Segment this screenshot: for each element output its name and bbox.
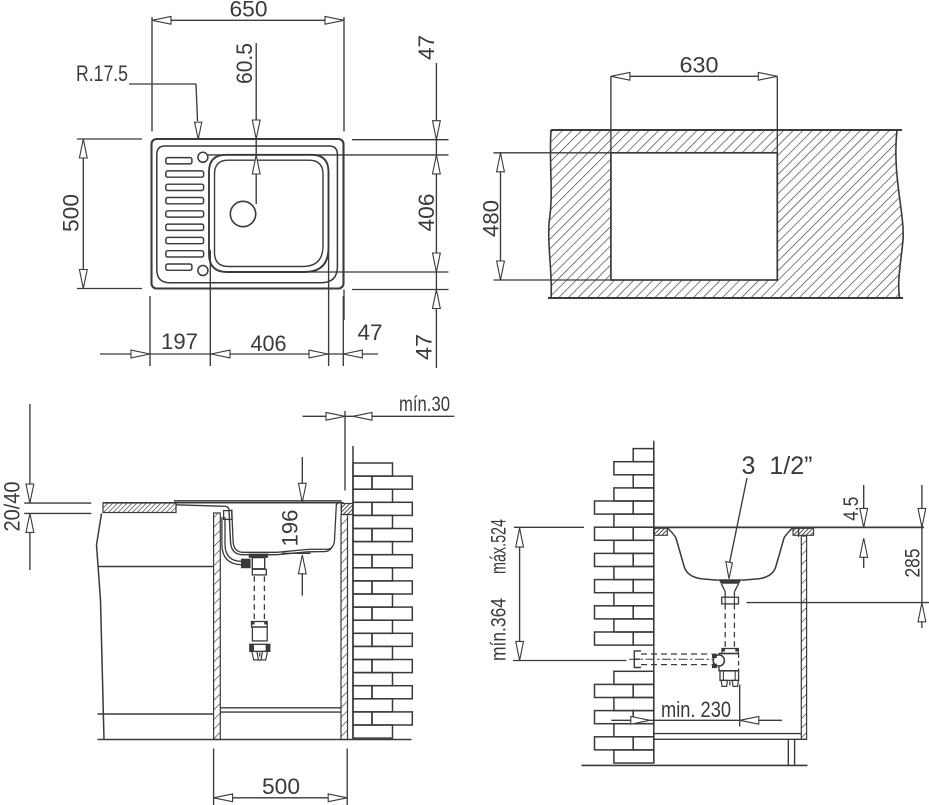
svg-text:47: 47: [412, 334, 437, 360]
svg-text:3 1/2”: 3 1/2”: [742, 452, 813, 480]
svg-text:500: 500: [59, 194, 84, 232]
svg-text:60.5: 60.5: [232, 43, 257, 84]
svg-text:20/40: 20/40: [0, 482, 25, 532]
svg-text:máx.524: máx.524: [488, 519, 511, 574]
svg-text:47: 47: [414, 35, 439, 60]
svg-text:650: 650: [230, 0, 268, 22]
svg-text:197: 197: [161, 329, 198, 354]
svg-text:630: 630: [680, 53, 719, 78]
svg-text:480: 480: [479, 200, 504, 237]
svg-text:mín.30: mín.30: [399, 393, 450, 416]
svg-text:47: 47: [358, 320, 383, 345]
svg-text:500: 500: [262, 774, 300, 799]
svg-text:mín.364: mín.364: [488, 598, 511, 661]
svg-text:min. 230: min. 230: [661, 697, 731, 722]
svg-text:285: 285: [902, 549, 925, 578]
svg-text:196: 196: [278, 510, 303, 547]
svg-text:R.17.5: R.17.5: [76, 61, 128, 86]
svg-text:406: 406: [414, 194, 439, 232]
svg-text:406: 406: [251, 331, 287, 356]
